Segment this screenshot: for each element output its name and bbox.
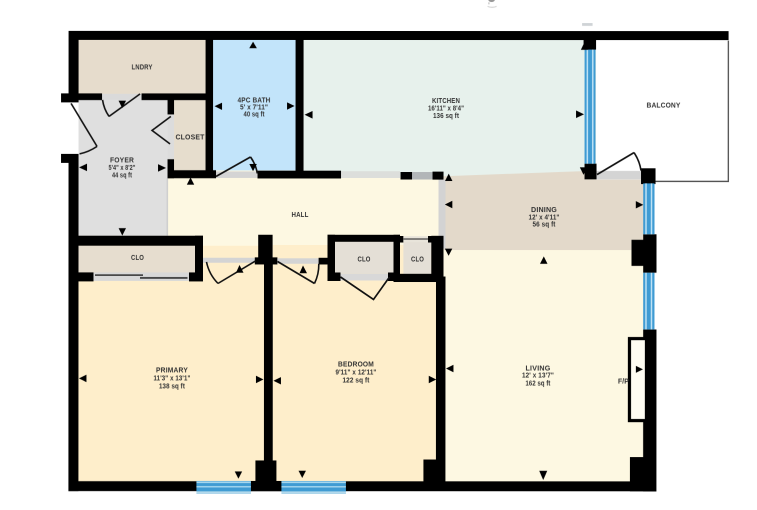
svg-text:F/P: F/P xyxy=(618,377,629,386)
svg-text:BALCONY: BALCONY xyxy=(647,101,681,110)
svg-text:CLO: CLO xyxy=(131,253,144,262)
svg-text:136 sq ft: 136 sq ft xyxy=(433,111,459,120)
svg-text:CLOSET: CLOSET xyxy=(176,132,205,141)
svg-text:HALL: HALL xyxy=(292,210,309,219)
svg-text:44 sq ft: 44 sq ft xyxy=(112,170,132,179)
svg-text:40 sq ft: 40 sq ft xyxy=(244,109,265,118)
svg-text:122 sq ft: 122 sq ft xyxy=(342,375,369,384)
svg-text:LNDRY: LNDRY xyxy=(132,62,153,71)
svg-text:CLO: CLO xyxy=(411,255,424,264)
svg-text:138 sq ft: 138 sq ft xyxy=(159,381,185,390)
svg-text:162 sq ft: 162 sq ft xyxy=(525,379,550,388)
svg-text:56 sq ft: 56 sq ft xyxy=(533,220,556,229)
svg-text:CLO: CLO xyxy=(357,254,370,263)
